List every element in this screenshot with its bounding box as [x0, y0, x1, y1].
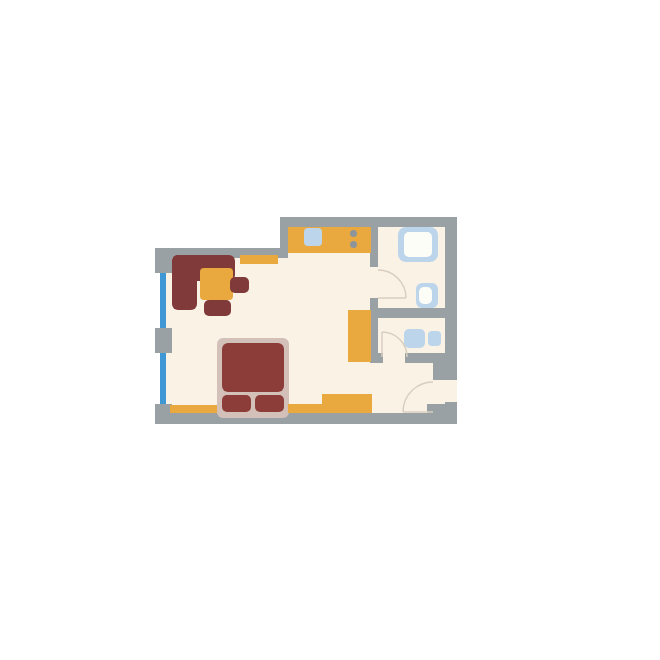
floor-plan	[0, 0, 660, 660]
shower-inner	[404, 232, 432, 257]
wall-bath-divider	[370, 308, 446, 318]
armchair-east	[230, 277, 249, 293]
wall-shelf	[240, 255, 278, 264]
armchair-south	[204, 300, 231, 316]
basin-left	[404, 329, 425, 348]
wall-left-mullion	[155, 328, 172, 353]
dresser-low	[288, 404, 322, 413]
window-upper	[160, 273, 166, 328]
wardrobe	[348, 310, 371, 362]
toilet-bowl	[419, 287, 432, 304]
sofa-side	[172, 255, 197, 310]
wall-bath2-cap	[370, 353, 383, 363]
kitchen-sink	[304, 228, 322, 246]
bench-left	[170, 405, 217, 413]
window-lower	[160, 353, 166, 405]
wall-bath2-bottom	[405, 353, 446, 363]
wall-bottom	[155, 413, 457, 424]
wall-left-pier-top	[155, 248, 172, 273]
pillow-left	[222, 395, 251, 412]
pillow-right	[255, 395, 284, 412]
kitchen-counter	[288, 227, 371, 253]
wall-bath-vertical-upper	[370, 227, 378, 267]
stove-burner-1	[350, 230, 357, 237]
dresser-high	[322, 394, 372, 413]
wall-top-right	[280, 217, 457, 227]
stove-burner-2	[350, 241, 357, 248]
coffee-table	[200, 268, 233, 300]
basin-right	[428, 331, 441, 346]
bed-mattress	[222, 343, 284, 392]
